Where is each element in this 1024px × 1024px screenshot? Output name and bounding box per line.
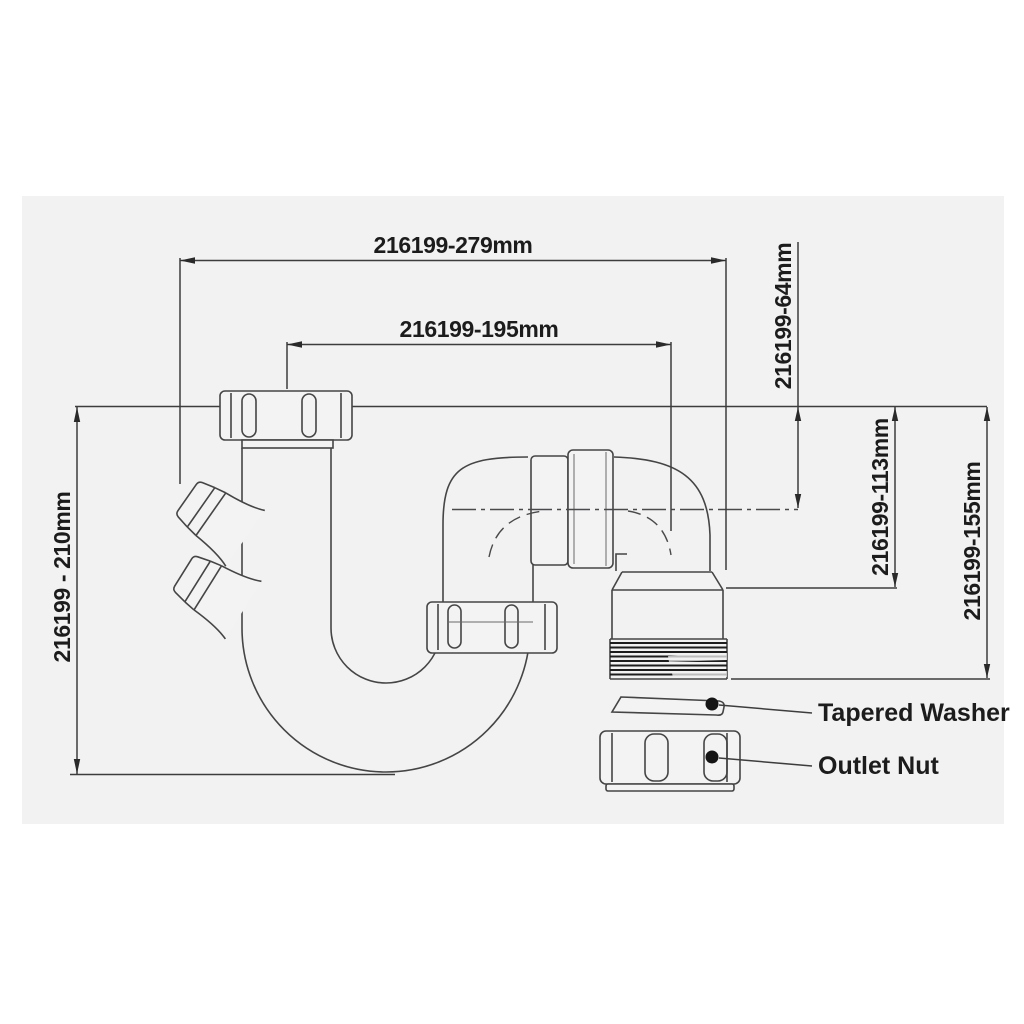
dim-label-inlet-to-outlet-width: 216199-195mm [400, 316, 559, 342]
outlet-nut-leader-dot [706, 751, 719, 764]
inlet-nut [220, 391, 352, 448]
dim-label-overall-width: 216199-279mm [374, 232, 533, 258]
p-trap-dimension-diagram: 216199-279mm 216199-195mm 216199 - 210mm… [0, 0, 1024, 1024]
tapered-washer-label: Tapered Washer [818, 699, 1010, 727]
tapered-washer-leader-dot [706, 698, 719, 711]
dim-label-top-to-centerline: 216199-64mm [770, 243, 796, 390]
dim-label-top-to-outlet-body: 216199-113mm [867, 418, 893, 576]
dim-label-top-to-outlet-end: 216199-155mm [959, 462, 985, 621]
dim-label-overall-height: 216199 - 210mm [49, 492, 75, 663]
technical-drawing-page: 216199-279mm 216199-195mm 216199 - 210mm… [0, 0, 1024, 1024]
outlet-nut-part [600, 731, 740, 791]
u-bend-nut [427, 602, 557, 653]
outlet-nut-label: Outlet Nut [818, 752, 939, 780]
